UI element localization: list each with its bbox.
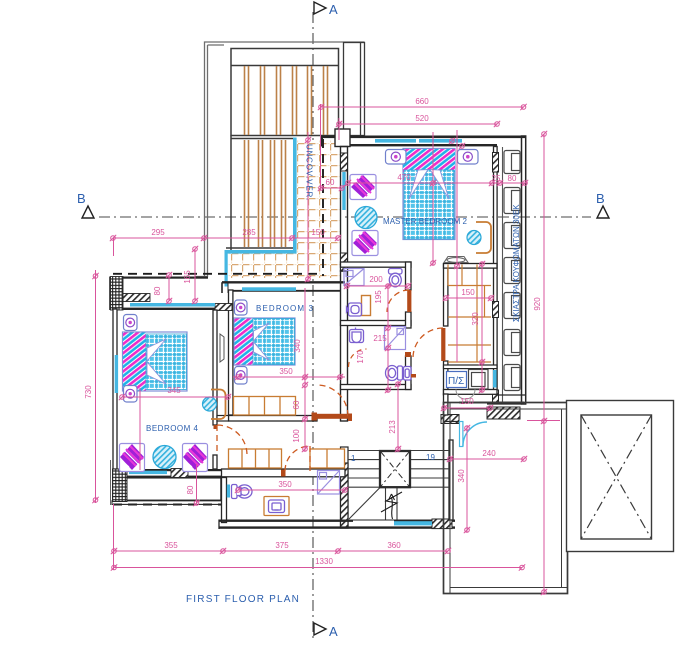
svg-text:B: B bbox=[77, 191, 86, 206]
svg-text:19: 19 bbox=[426, 453, 435, 462]
svg-text:470: 470 bbox=[397, 173, 411, 182]
svg-text:520: 520 bbox=[415, 114, 429, 123]
svg-text:165: 165 bbox=[183, 270, 192, 284]
svg-text:215: 215 bbox=[373, 334, 387, 343]
svg-text:Π/Σ: Π/Σ bbox=[448, 376, 464, 387]
svg-text:355: 355 bbox=[164, 541, 178, 550]
svg-text:295: 295 bbox=[151, 228, 165, 237]
svg-text:80: 80 bbox=[186, 485, 195, 494]
svg-text:80: 80 bbox=[508, 174, 517, 183]
svg-text:200: 200 bbox=[369, 275, 383, 284]
svg-text:195: 195 bbox=[374, 290, 383, 304]
svg-text:UNCOV.VER.: UNCOV.VER. bbox=[305, 144, 314, 201]
svg-text:350: 350 bbox=[278, 480, 292, 489]
svg-text:A: A bbox=[329, 2, 338, 17]
svg-text:80: 80 bbox=[153, 286, 162, 295]
svg-text:340: 340 bbox=[457, 469, 466, 483]
svg-text:150: 150 bbox=[460, 397, 474, 406]
svg-text:BEDROOM 3: BEDROOM 3 bbox=[256, 304, 314, 313]
svg-text:345: 345 bbox=[167, 386, 181, 395]
svg-text:ΣΚΙΑΣΤΡΑ ΚΟΥΦΩΜΑΤΩΝ 30ΕΚ: ΣΚΙΑΣΤΡΑ ΚΟΥΦΩΜΑΤΩΝ 30ΕΚ bbox=[512, 204, 521, 322]
svg-text:213: 213 bbox=[388, 420, 397, 434]
svg-text:B: B bbox=[596, 191, 605, 206]
svg-text:150: 150 bbox=[311, 228, 325, 237]
svg-text:25: 25 bbox=[492, 174, 501, 183]
svg-text:730: 730 bbox=[84, 385, 93, 399]
svg-text:240: 240 bbox=[482, 449, 496, 458]
svg-text:100: 100 bbox=[292, 429, 301, 443]
svg-text:1: 1 bbox=[351, 454, 356, 463]
svg-text:MASTER BEDROOM 2: MASTER BEDROOM 2 bbox=[383, 217, 468, 226]
svg-text:60: 60 bbox=[292, 400, 301, 409]
svg-text:375: 375 bbox=[275, 541, 289, 550]
svg-text:1330: 1330 bbox=[315, 557, 333, 566]
svg-text:320: 320 bbox=[471, 312, 480, 326]
svg-text:FIRST FLOOR PLAN: FIRST FLOOR PLAN bbox=[186, 594, 300, 605]
svg-text:BEDROOM 4: BEDROOM 4 bbox=[146, 424, 199, 433]
svg-text:150: 150 bbox=[461, 288, 475, 297]
svg-text:60: 60 bbox=[326, 178, 335, 187]
svg-text:920: 920 bbox=[533, 297, 542, 311]
svg-text:350: 350 bbox=[279, 367, 293, 376]
svg-text:340: 340 bbox=[293, 339, 302, 353]
svg-text:A: A bbox=[329, 624, 338, 639]
svg-text:285: 285 bbox=[242, 228, 256, 237]
svg-text:660: 660 bbox=[415, 97, 429, 106]
svg-text:360: 360 bbox=[387, 541, 401, 550]
svg-text:170: 170 bbox=[356, 350, 365, 364]
